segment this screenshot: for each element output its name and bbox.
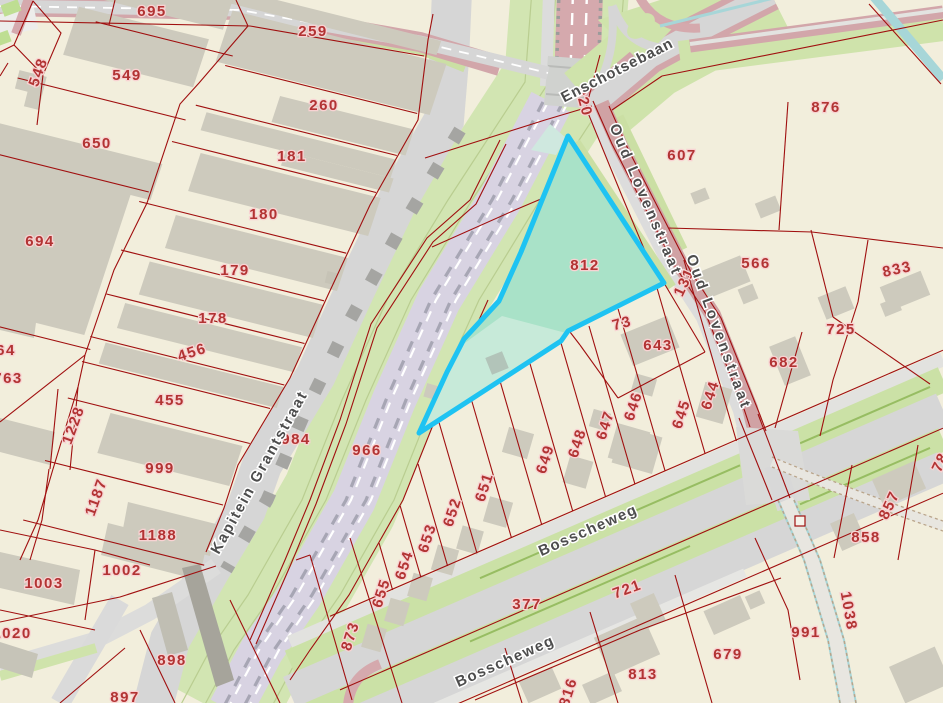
svg-text:991: 991 bbox=[791, 624, 821, 641]
svg-text:180: 180 bbox=[249, 206, 279, 223]
svg-text:455: 455 bbox=[155, 392, 185, 409]
svg-text:695: 695 bbox=[137, 3, 167, 20]
svg-text:999: 999 bbox=[145, 460, 175, 477]
svg-text:1020: 1020 bbox=[0, 625, 32, 642]
svg-text:566: 566 bbox=[741, 255, 771, 272]
svg-text:812: 812 bbox=[570, 257, 600, 274]
svg-text:1002: 1002 bbox=[102, 562, 141, 579]
svg-text:1003: 1003 bbox=[24, 575, 63, 592]
svg-text:763: 763 bbox=[0, 370, 23, 387]
svg-text:607: 607 bbox=[667, 147, 697, 164]
svg-text:897: 897 bbox=[110, 689, 140, 703]
svg-text:179: 179 bbox=[220, 262, 250, 279]
svg-text:725: 725 bbox=[826, 321, 856, 338]
svg-text:259: 259 bbox=[298, 23, 328, 40]
svg-text:1188: 1188 bbox=[139, 527, 178, 544]
svg-text:64: 64 bbox=[0, 342, 16, 359]
svg-text:682: 682 bbox=[769, 354, 799, 371]
svg-text:694: 694 bbox=[25, 233, 55, 250]
svg-text:643: 643 bbox=[643, 337, 673, 354]
svg-text:966: 966 bbox=[352, 442, 382, 459]
svg-text:181: 181 bbox=[277, 148, 307, 165]
svg-text:876: 876 bbox=[811, 99, 841, 116]
svg-text:549: 549 bbox=[112, 67, 142, 84]
svg-text:858: 858 bbox=[851, 529, 881, 546]
svg-text:178: 178 bbox=[198, 310, 228, 327]
svg-text:679: 679 bbox=[713, 646, 743, 663]
svg-text:898: 898 bbox=[157, 652, 187, 669]
svg-text:260: 260 bbox=[309, 97, 339, 114]
svg-text:377: 377 bbox=[512, 596, 542, 613]
svg-text:813: 813 bbox=[628, 666, 658, 683]
svg-text:650: 650 bbox=[82, 135, 112, 152]
